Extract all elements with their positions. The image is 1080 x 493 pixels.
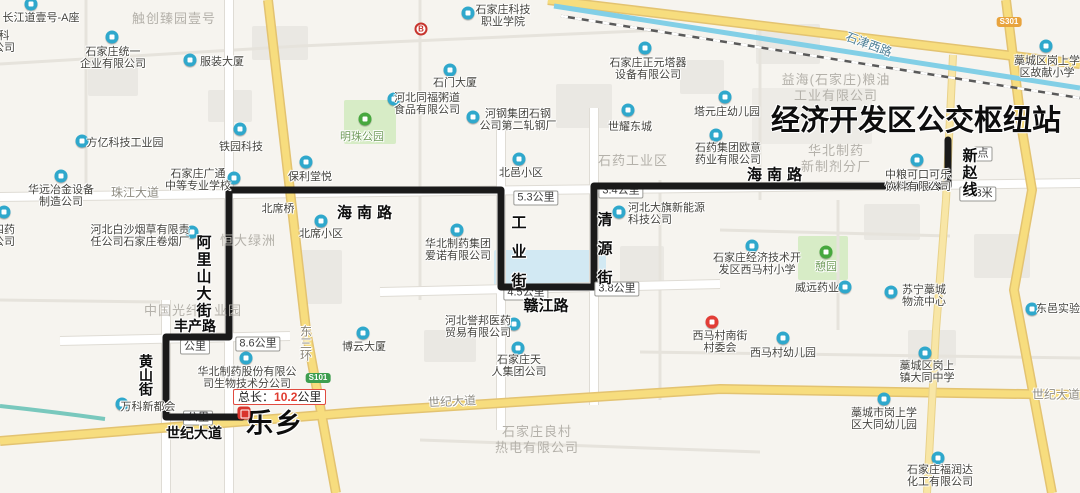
poi-label[interactable]: 河北大旗新能源科技公司 (628, 202, 705, 226)
poi-label[interactable]: 河钢集团石钢公司第二轧钢厂 (480, 108, 557, 132)
poi-label[interactable]: 河北誉邦医药贸易有限公司 (445, 315, 511, 339)
bank-letter: B (418, 25, 424, 34)
road-name-label: 珠江大道 (111, 184, 159, 201)
poi-label[interactable]: 藁城区岗上镇大同中学 (900, 360, 955, 384)
poi-label[interactable]: 北邑小区 (499, 167, 543, 179)
poi-marker-icon[interactable] (622, 104, 635, 117)
road-name-label: 东三环 (298, 325, 315, 361)
poi-label[interactable]: 石家庄经济技术开发区西马村小学 (713, 252, 801, 276)
poi-label[interactable]: 石药集团欧意药业有限公司 (695, 142, 761, 166)
poi-marker-icon[interactable] (25, 0, 38, 11)
poi-label[interactable]: 北席小区 (299, 228, 343, 240)
poi-label[interactable]: 四药公司 (0, 224, 15, 248)
poi-marker-icon[interactable] (839, 281, 852, 294)
poi-marker-icon[interactable] (777, 332, 790, 345)
poi-label[interactable]: 东邑实验 (1036, 303, 1080, 315)
area-label: 华北制药新制剂分厂 (801, 143, 871, 175)
route-street-annotation: 乐乡 (246, 402, 304, 441)
poi-marker-icon[interactable] (234, 123, 247, 136)
poi-marker-icon[interactable] (451, 224, 464, 237)
route-street-annotation: 阿里山大街 (193, 235, 214, 320)
poi-label[interactable]: 万科新都会 (121, 401, 176, 413)
poi-label[interactable]: 憩园 (815, 261, 837, 273)
total-length-value: 10.2 (274, 390, 297, 404)
poi-marker-icon[interactable] (55, 170, 68, 183)
map-canvas[interactable]: 3.4公里4.5公里公里公里 B 总长：10.2公里 长江道壹号-A座科公司石家… (0, 0, 1080, 493)
poi-marker-icon[interactable] (911, 154, 924, 167)
poi-label[interactable]: 石家庄广通中等专业学校 (165, 168, 231, 192)
poi-label[interactable]: 服装大厦 (200, 56, 244, 68)
poi-label[interactable]: 西马村南街村委会 (693, 330, 748, 354)
poi-marker-icon[interactable] (746, 240, 759, 253)
poi-marker-icon[interactable] (710, 129, 723, 142)
route-street-annotation: 世纪大道 (166, 423, 222, 443)
poi-label[interactable]: 保利堂悦 (288, 171, 332, 183)
poi-marker-icon[interactable] (300, 156, 313, 169)
poi-marker-icon[interactable] (1040, 40, 1053, 53)
area-label: 石药工业区 (598, 153, 668, 169)
poi-label[interactable]: 博云大厦 (342, 341, 386, 353)
poi-label[interactable]: 北席桥 (262, 203, 295, 215)
poi-label[interactable]: 方亿科技工业园 (87, 137, 164, 149)
total-length-prefix: 总长： (238, 390, 274, 404)
road-name-label: 世纪大道 (428, 391, 477, 410)
poi-marker-icon[interactable] (462, 7, 475, 20)
route-street-annotation: 黄山街 (136, 354, 156, 396)
route-street-annotation: 赣江路 (523, 295, 568, 316)
poi-label[interactable]: 中粮可口可乐饮料有限公司 (885, 169, 951, 193)
poi-marker-icon[interactable] (467, 111, 480, 124)
red-pin-icon[interactable] (706, 316, 719, 329)
route-street-annotation: 经济开发区公交枢纽站 (771, 97, 1061, 139)
route-street-annotation: 海南路 (747, 164, 807, 185)
poi-marker-icon[interactable] (878, 393, 891, 406)
park-poi-icon[interactable] (359, 113, 372, 126)
poi-label[interactable]: 威远药业 (795, 282, 839, 294)
distance-badge: 5.3公里 (513, 191, 558, 206)
road-name-label: 石津西路 (844, 28, 895, 60)
poi-label[interactable]: 铁园科技 (219, 141, 263, 153)
poi-marker-icon[interactable] (719, 91, 732, 104)
poi-marker-icon[interactable] (512, 342, 525, 355)
poi-label[interactable]: 长江道壹号-A座 (3, 12, 80, 24)
route-total-length-badge: 总长：10.2公里 (233, 389, 326, 405)
poi-label[interactable]: 科公司 (0, 30, 15, 54)
area-label: 触创臻园壹号 (132, 11, 216, 27)
poi-label[interactable]: 西马村幼儿园 (750, 347, 816, 359)
poi-label[interactable]: 世耀东城 (608, 121, 652, 133)
poi-label[interactable]: 石家庄福润达化工有限公司 (907, 464, 973, 488)
poi-marker-icon[interactable] (444, 64, 457, 77)
poi-marker-icon[interactable] (513, 153, 526, 166)
poi-marker-icon[interactable] (240, 352, 253, 365)
poi-label[interactable]: 石家庄正元塔器设备有限公司 (610, 57, 687, 81)
distance-badge: 8.6公里 (235, 337, 280, 352)
poi-label[interactable]: 华远冶金设备制造公司 (28, 184, 94, 208)
poi-label[interactable]: 明珠公园 (340, 131, 384, 143)
poi-marker-icon[interactable] (0, 206, 11, 219)
total-length-unit: 公里 (297, 390, 321, 404)
poi-marker-icon[interactable] (885, 286, 898, 299)
area-label: 恒大绿洲 (220, 233, 276, 249)
area-label: 石家庄良村热电有限公司 (495, 424, 579, 456)
route-street-annotation: 新赵线 (959, 148, 980, 199)
poi-marker-icon[interactable] (919, 347, 932, 360)
road-shield: S301 (997, 17, 1022, 27)
poi-label[interactable]: 石家庄天人集团公司 (492, 354, 547, 378)
poi-marker-icon[interactable] (357, 327, 370, 340)
poi-label[interactable]: 华北制药集团爱诺有限公司 (425, 238, 491, 262)
route-street-annotation: 海南路 (337, 202, 397, 223)
poi-label[interactable]: 藁城市岗上学区大同幼儿园 (851, 407, 917, 431)
park-poi-icon[interactable] (820, 246, 833, 259)
poi-label[interactable]: 苏宁藁城物流中心 (902, 284, 946, 308)
poi-label[interactable]: 石家庄科技职业学院 (476, 4, 531, 28)
road-shield: S101 (306, 373, 331, 383)
poi-marker-icon[interactable] (184, 54, 197, 67)
poi-label[interactable]: 河北白沙烟草有限责任公司石家庄卷烟厂 (91, 224, 190, 248)
poi-label[interactable]: 华北制药股份有限公司生物技术分公司 (198, 366, 297, 390)
poi-marker-icon[interactable] (639, 42, 652, 55)
poi-label[interactable]: 塔元庄幼儿园 (694, 106, 760, 118)
poi-marker-icon[interactable] (932, 452, 945, 465)
poi-marker-icon[interactable] (315, 215, 328, 228)
bank-icon[interactable]: B (415, 23, 428, 36)
route-start-marker[interactable] (238, 407, 251, 420)
poi-label[interactable]: 藁城区岗上学区故献小学 (1014, 55, 1080, 79)
poi-label[interactable]: 石门大厦 (433, 77, 477, 89)
poi-label[interactable]: 河北同福粥道食品有限公司 (394, 92, 460, 116)
road-name-label: 世纪大道 (1032, 386, 1080, 403)
route-street-annotation: 工业街 (508, 215, 529, 302)
route-street-annotation: 清源街 (594, 212, 615, 299)
poi-marker-icon[interactable] (106, 31, 119, 44)
poi-label[interactable]: 石家庄统一企业有限公司 (80, 46, 146, 70)
labels-layer: B 总长：10.2公里 长江道壹号-A座科公司石家庄统一企业有限公司服装大厦石家… (0, 0, 1080, 493)
